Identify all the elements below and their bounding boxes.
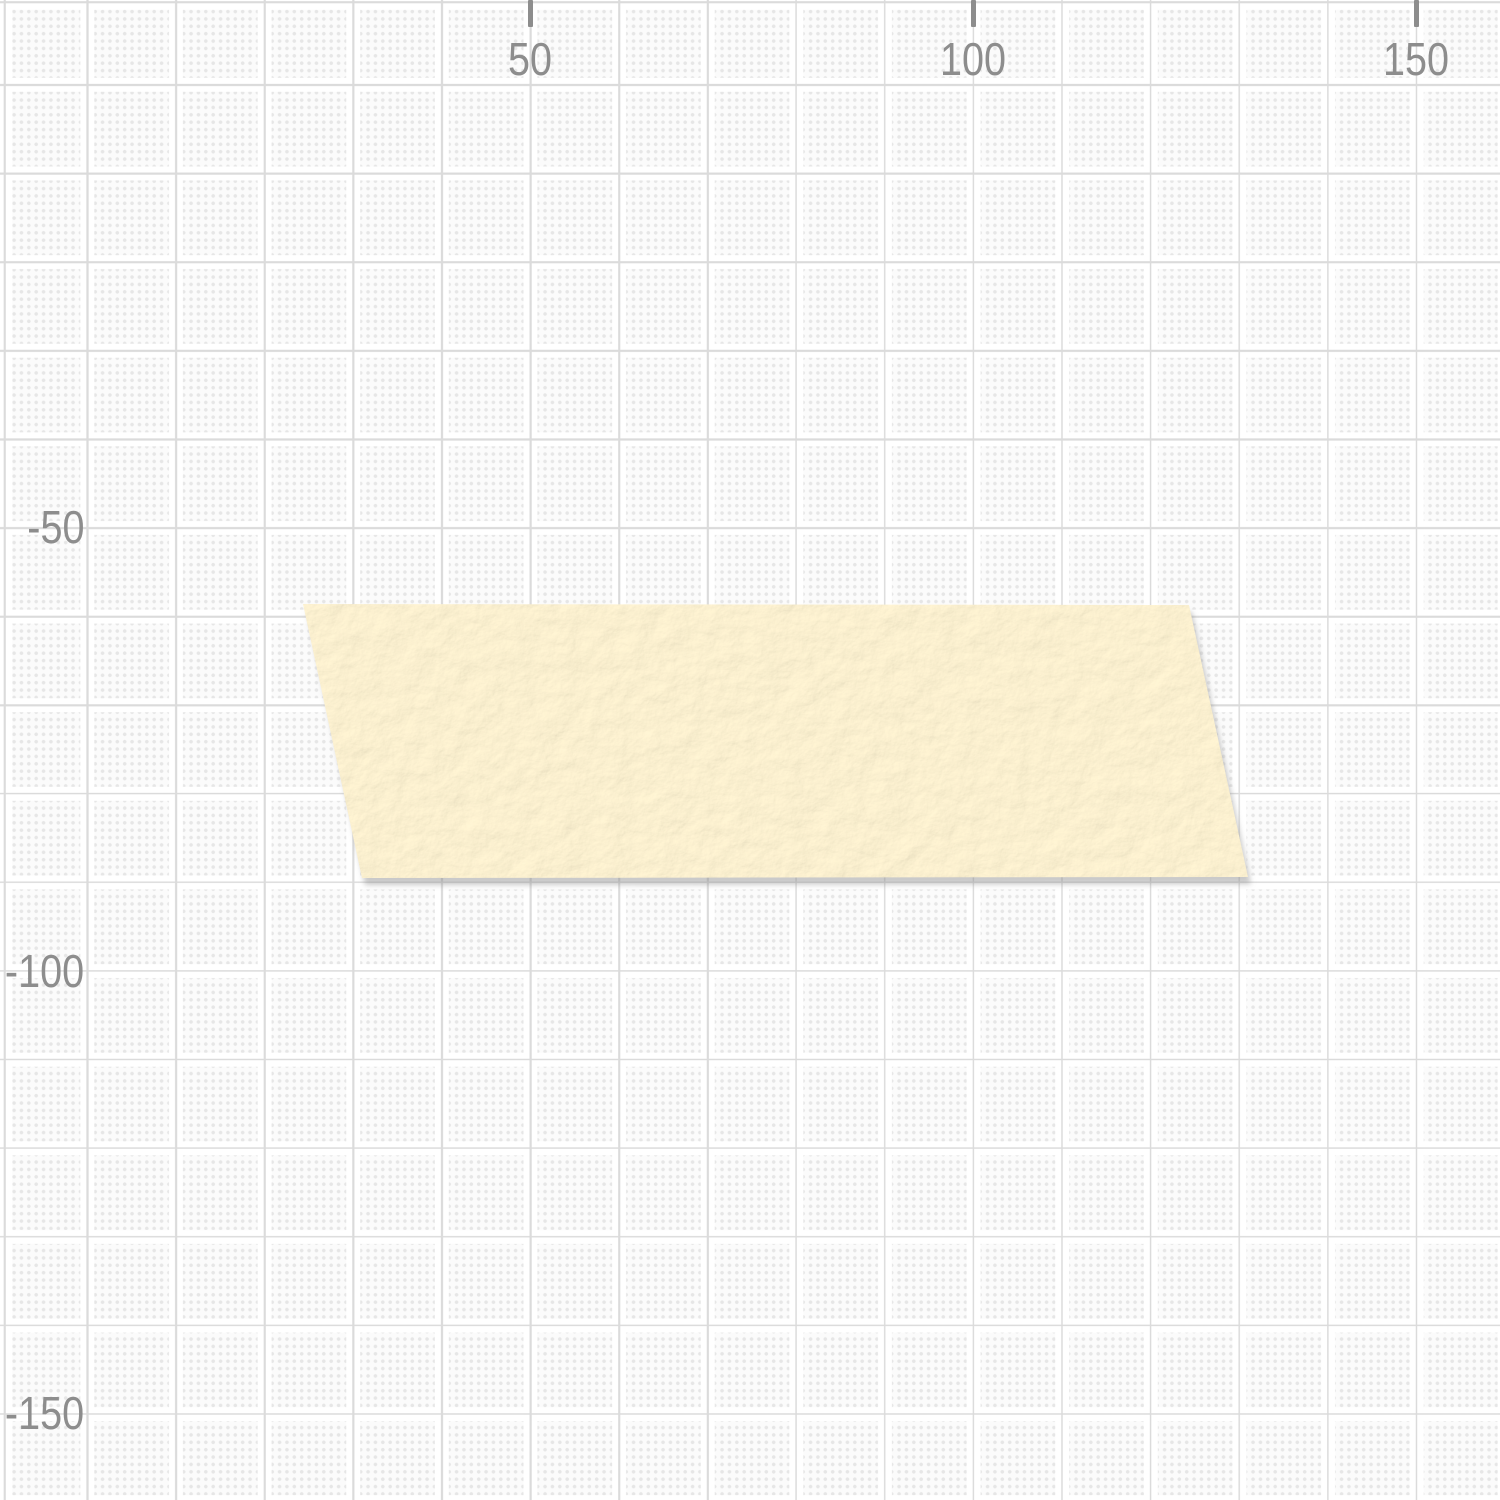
infinite-canvas[interactable]: 50 100 150 -50 -100 -150 xyxy=(0,0,1500,1500)
top-ruler-label-50-text: 50 xyxy=(508,36,552,82)
left-ruler-label-minus50: -50 xyxy=(0,504,84,550)
top-ruler-tick-50 xyxy=(528,0,533,27)
top-ruler-label-50: 50 xyxy=(504,36,555,82)
left-ruler-label-minus50-text: -50 xyxy=(27,504,84,550)
left-ruler-label-minus100: -100 xyxy=(0,948,84,994)
left-ruler-label-minus150: -150 xyxy=(0,1390,84,1436)
top-ruler-label-100: 100 xyxy=(935,36,1012,82)
top-ruler-label-150-text: 150 xyxy=(1383,36,1449,82)
left-ruler-label-minus100-text: -100 xyxy=(5,948,84,994)
left-ruler-label-minus150-text: -150 xyxy=(5,1390,84,1436)
top-ruler-label-150: 150 xyxy=(1378,36,1455,82)
top-ruler-tick-150 xyxy=(1414,0,1419,27)
objects-layer xyxy=(0,0,1500,1500)
masking-tape-object[interactable] xyxy=(303,604,1248,878)
top-ruler-tick-100 xyxy=(971,0,976,27)
top-ruler-label-100-text: 100 xyxy=(940,36,1006,82)
